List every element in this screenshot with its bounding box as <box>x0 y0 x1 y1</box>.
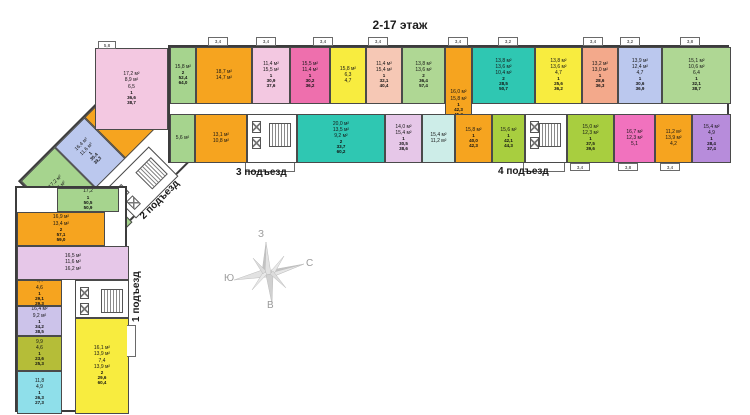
apartment-cell[interactable]: 16,1 м²13,9 м²7,413,9 м²2 29,6 60,4 <box>75 318 129 414</box>
compass-letter-west: З <box>258 229 264 240</box>
room-area-label: 4,3 <box>121 122 130 131</box>
apartment-type-label: 1 50,5 50,9 <box>84 196 93 211</box>
elevator-icon <box>126 195 141 210</box>
wing-vertical: 17,21 50,5 50,916,9 м²13,4 м²2 57,1 59,0… <box>15 186 127 412</box>
apartment-cell[interactable]: 4,44,61 29,1 29,3 <box>17 280 62 306</box>
entrance-label-1: 1 подъезд <box>131 271 142 322</box>
stairs-icon <box>135 157 168 190</box>
apartment-cell[interactable]: 16,4 м²9,2 м²1 34,2 38,5 <box>17 306 62 336</box>
elevator-icon <box>80 303 89 315</box>
balcony: 3,4 <box>583 37 603 46</box>
apartment-cell[interactable]: 9,94,61 23,6 25,3 <box>17 336 62 371</box>
entrance-canopy-1 <box>127 325 136 357</box>
balcony: 3,4 <box>368 37 388 46</box>
room-area-label: 16,9 м² <box>53 215 69 220</box>
balcony: 3,4 <box>660 163 680 171</box>
balcony: 3,4 <box>313 37 333 46</box>
balcony: 3,8 <box>618 163 638 171</box>
apartment-type-label: 1 34,2 38,5 <box>35 320 44 335</box>
apartment-type-label: 1 29,1 29,3 <box>35 292 44 306</box>
compass-rose: З С Ю В <box>222 228 318 314</box>
apartment-cell[interactable]: 17,21 50,5 50,9 <box>57 188 119 212</box>
stairs-icon <box>101 289 123 313</box>
apartment-type-label: 2 57,1 59,0 <box>57 228 66 243</box>
room-area-label: 11,6 м² <box>65 260 81 265</box>
entrance-label-4: 4 подъезд <box>498 166 549 177</box>
apartment-type-label: 1 26,3 27,3 <box>35 391 44 406</box>
balcony: 3,4 <box>448 37 468 46</box>
room-area-label: 13,9 м² <box>94 352 110 357</box>
balcony: 3,2 <box>498 37 518 46</box>
balcony: 3,4 <box>256 37 276 46</box>
compass-letter-east: В <box>267 300 274 311</box>
room-area-label: 17,2 <box>83 189 93 194</box>
compass-letter-north: С <box>306 258 313 269</box>
balcony-strip: 3,43,43,43,43,43,23,43,23,83,43,83,4 <box>168 0 729 415</box>
apartment-type-label: 1 23,6 25,3 <box>35 352 44 367</box>
room-area-label: 4,4 <box>36 280 43 285</box>
apartment-cell[interactable]: 16,9 м²13,4 м²2 57,1 59,0 <box>17 212 105 246</box>
apartment-type-label: 1 35,4 39,3 <box>86 149 103 166</box>
balcony: 3,2 <box>620 37 640 46</box>
entrance-label-3: 3 подъезд <box>236 167 287 178</box>
apartment-type-label: 2 29,6 60,4 <box>98 371 107 386</box>
balcony: 3,8 <box>680 37 700 46</box>
room-area-label: 16,4 м² <box>31 307 47 312</box>
apartment-cell[interactable]: 11,84,91 26,3 27,3 <box>17 371 62 414</box>
balcony: 5,8 <box>98 41 116 49</box>
compass-letter-south: Ю <box>224 273 234 284</box>
room-area-label: 16,2 м² <box>65 267 81 272</box>
core-stairwell <box>75 280 129 318</box>
balcony: 3,4 <box>208 37 228 46</box>
balcony: 3,4 <box>570 163 590 171</box>
apartment-cell[interactable]: 16,5 м²11,6 м²16,2 м² <box>17 246 129 280</box>
elevator-icon <box>80 287 89 299</box>
